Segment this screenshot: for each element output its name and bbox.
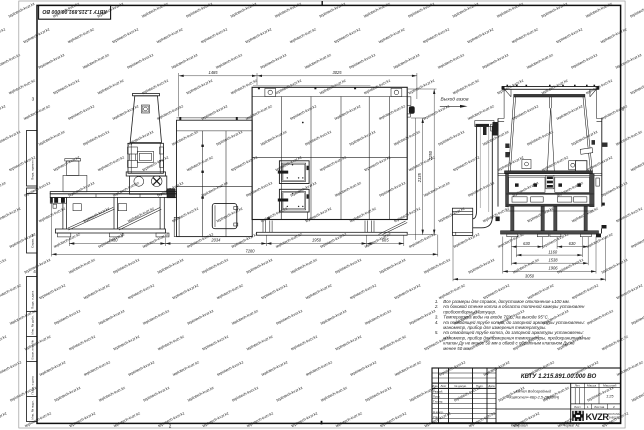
svg-text:2.: 2.: [434, 304, 439, 309]
svg-text:1:25: 1:25: [606, 394, 614, 398]
svg-text:Формат А2: Формат А2: [563, 424, 580, 428]
svg-text:Масса: Масса: [587, 384, 596, 388]
svg-text:1160: 1160: [548, 249, 558, 254]
svg-text:КОСТАНАЙ: КОСТАНАЙ: [608, 413, 621, 416]
svg-text:1538: 1538: [548, 257, 558, 262]
svg-text:2250: 2250: [428, 150, 433, 161]
svg-text:Листов: Листов: [594, 405, 604, 409]
svg-text:2135: 2135: [417, 172, 422, 183]
svg-text:«КазКотел»-КВр-2,5-ДВ(ВЛН): «КазКотел»-КВр-2,5-ДВ(ВЛН): [507, 396, 560, 400]
svg-text:1: 1: [587, 405, 589, 409]
svg-text:1950: 1950: [312, 238, 322, 243]
svg-text:5.: 5.: [435, 330, 439, 335]
svg-text:7280: 7280: [245, 249, 255, 254]
svg-text:Н.контр.: Н.контр.: [433, 410, 444, 414]
svg-text:Лист: Лист: [440, 384, 447, 388]
svg-text:4.: 4.: [435, 320, 439, 325]
svg-text:1460: 1460: [108, 238, 118, 243]
svg-text:Подп. и дата: Подп. и дата: [31, 290, 35, 309]
svg-text:685: 685: [382, 238, 390, 243]
svg-text:Копировал: Копировал: [511, 424, 528, 428]
svg-text:1906: 1906: [548, 266, 558, 271]
svg-text:КВТУ 1.215.891.00.000 ВО: КВТУ 1.215.891.00.000 ВО: [521, 373, 597, 380]
svg-text:Дата: Дата: [488, 384, 495, 388]
svg-text:630: 630: [569, 241, 577, 246]
svg-text:Т.контр.: Т.контр.: [433, 400, 443, 404]
svg-text:3: 3: [32, 96, 35, 101]
svg-text:ЗАВОД РЗ: ЗАВОД РЗ: [609, 417, 621, 420]
svg-text:КВТУ 1.215.891.00.000 ВО: КВТУ 1.215.891.00.000 ВО: [42, 8, 106, 14]
svg-text:менее 50 мм.: менее 50 мм.: [443, 346, 470, 351]
svg-text:Лист: Лист: [574, 405, 581, 409]
svg-text:4: 4: [33, 269, 36, 274]
svg-text:Разраб.: Разраб.: [433, 390, 443, 394]
svg-text:Утв.: Утв.: [433, 415, 439, 419]
svg-text:Инв. № подл.: Инв. № подл.: [31, 400, 35, 419]
svg-text:Подп.: Подп.: [476, 384, 484, 388]
svg-text:Котел Водогрейный: Котел Водогрейный: [515, 389, 551, 393]
svg-text:Взам. инв. №: Взам. инв. №: [31, 340, 35, 360]
svg-text:8: 8: [622, 107, 625, 112]
svg-text:Выход газов: Выход газов: [441, 96, 469, 102]
svg-text:3025: 3025: [332, 70, 342, 75]
svg-text:Масштаб: Масштаб: [603, 384, 616, 388]
svg-text:Инв. № дубл.: Инв. № дубл.: [31, 315, 35, 334]
svg-text:Подп. и дата: Подп. и дата: [31, 376, 35, 395]
svg-text:Перв. примен.: Перв. примен.: [31, 159, 35, 180]
svg-text:630: 630: [523, 241, 531, 246]
svg-text:3050: 3050: [525, 273, 535, 278]
svg-text:Изм.: Изм.: [432, 384, 438, 388]
svg-text:2: 2: [169, 424, 172, 429]
svg-text:№ докум.: № докум.: [454, 384, 467, 388]
svg-text:2: 2: [613, 405, 615, 409]
svg-text:Справ. №: Справ. №: [31, 233, 35, 248]
svg-text:Лит.: Лит.: [575, 384, 581, 388]
svg-text:2034: 2034: [210, 238, 221, 243]
svg-text:1485: 1485: [208, 70, 218, 75]
svg-text:Пров.: Пров.: [433, 395, 441, 399]
svg-text:KVZR: KVZR: [586, 412, 610, 422]
